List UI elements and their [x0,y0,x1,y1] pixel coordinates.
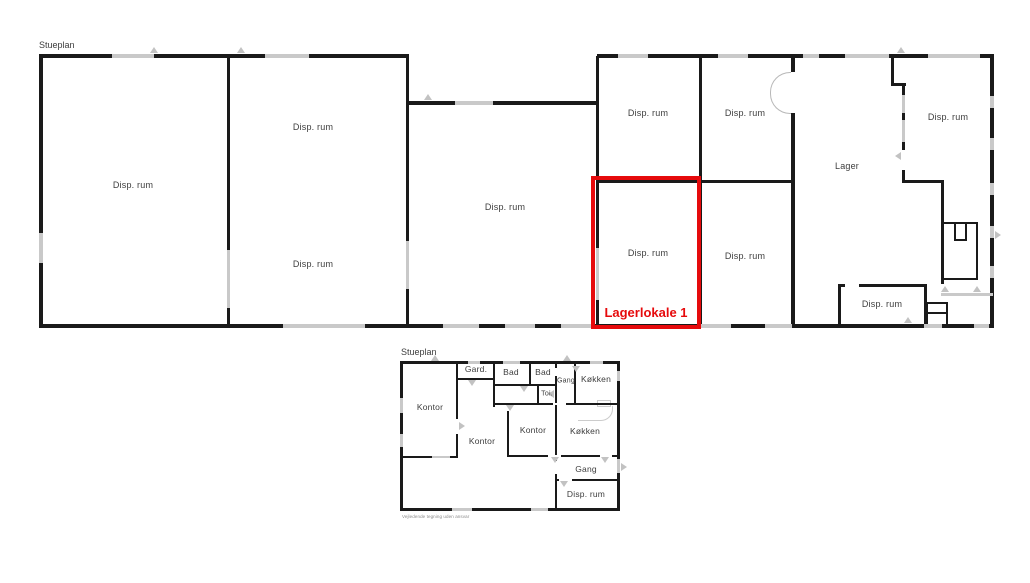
room-label: Kontor [520,425,546,435]
window-segment [701,324,731,328]
room-label: Kontor [469,436,495,446]
window-segment [432,456,450,458]
door-swing-icon [563,355,571,361]
door-swing-icon [459,422,465,430]
disclaimer-text: Vejledende tegning uden ansvar [402,514,469,519]
door-swing-icon [424,94,432,100]
window-segment [400,398,403,413]
room-label: Disp. rum [113,180,153,190]
door-swing-icon [770,93,791,114]
highlight-label: Lagerlokale 1 [595,305,697,320]
room-label: Toi. [541,391,553,398]
window-segment [765,324,792,328]
window-segment [902,95,905,113]
window-segment [990,96,994,108]
room-label: Disp. rum [862,299,902,309]
window-segment [924,324,942,328]
wall-segment [924,284,927,326]
room-label: Gang [575,464,597,474]
window-segment [928,54,980,58]
window-segment [265,54,309,58]
room-label: Disp. rum [567,489,605,499]
wall-segment [976,222,978,280]
window-segment [617,371,620,381]
room-label: Gang [557,378,575,385]
door-swing-icon [150,47,158,53]
wall-segment [838,284,841,326]
window-segment [974,324,989,328]
window-segment [990,138,994,150]
window-segment [902,120,905,142]
door-opening [555,368,557,376]
window-segment [443,324,479,328]
door-swing-icon [941,286,949,292]
room-label: Kontor [417,402,443,412]
door-swing-icon [770,72,791,93]
door-opening [791,72,795,113]
counter-outline [578,406,613,421]
window-segment [618,54,648,58]
door-swing-icon [601,457,609,463]
door-swing-icon [551,457,559,463]
room-label: Disp. rum [293,259,333,269]
window-segment [845,54,889,58]
door-swing-icon [895,152,901,160]
fixture-box [926,302,948,326]
window-segment [617,459,620,473]
window-segment [283,324,365,328]
wall-segment [507,411,509,456]
wall-segment [529,361,531,385]
window-segment [590,361,603,364]
plan-title-top: Stueplan [39,40,75,50]
room-label: Bad [535,367,551,377]
room-label: Bad [503,367,519,377]
room-label: Disp. rum [485,202,525,212]
door-swing-icon [995,231,1001,239]
room-label: Køkken [570,426,600,436]
room-label: Disp. rum [293,122,333,132]
window-segment [227,250,230,308]
wall-segment [39,54,43,328]
door-swing-icon [904,317,912,323]
room-label: Disp. rum [725,251,765,261]
window-segment [505,324,535,328]
door-swing-icon [973,286,981,292]
window-segment [531,508,548,511]
window-segment [803,54,819,58]
wall-segment [456,361,458,457]
door-opening [456,419,458,434]
wall-segment [617,361,620,511]
window-segment [406,241,409,289]
window-segment [452,508,472,511]
window-segment [561,324,592,328]
room-label: Disp. rum [628,108,668,118]
door-swing-icon [560,481,568,487]
window-segment [718,54,748,58]
wall-segment [941,182,944,284]
wall-segment [941,278,978,280]
window-segment [990,266,994,278]
door-swing-icon [506,405,514,411]
window-segment [990,183,994,195]
window-segment [941,293,993,296]
window-segment [112,54,154,58]
door-swing-icon [621,463,627,471]
wall-segment [926,312,946,314]
room-label: Disp. rum [725,108,765,118]
plan-title-bottom: Stueplan [401,347,437,357]
wall-segment [941,222,978,224]
wall-segment [891,56,894,86]
door-swing-icon [897,47,905,53]
room-label: Lager [835,161,859,171]
wall-segment [406,101,599,105]
wall-segment [400,508,620,511]
door-opening [845,284,859,287]
door-opening [902,150,905,170]
window-segment [39,233,43,263]
window-segment [990,226,994,238]
door-swing-icon [520,386,528,392]
window-segment [455,101,493,105]
door-swing-icon [572,366,580,372]
window-segment [400,434,403,447]
wall-segment [954,239,967,241]
room-label: Gard. [465,364,487,374]
door-opening [553,403,566,405]
highlight-box: Lagerlokale 1 [591,176,701,329]
door-swing-icon [237,47,245,53]
wall-segment [537,385,539,404]
room-label: Disp. rum [928,112,968,122]
wall-segment [39,54,408,58]
wall-segment [902,180,944,183]
window-segment [503,361,520,364]
door-swing-icon [468,380,476,386]
room-label: Køkken [581,374,611,384]
floorplan-image: Stueplan [0,0,1030,583]
